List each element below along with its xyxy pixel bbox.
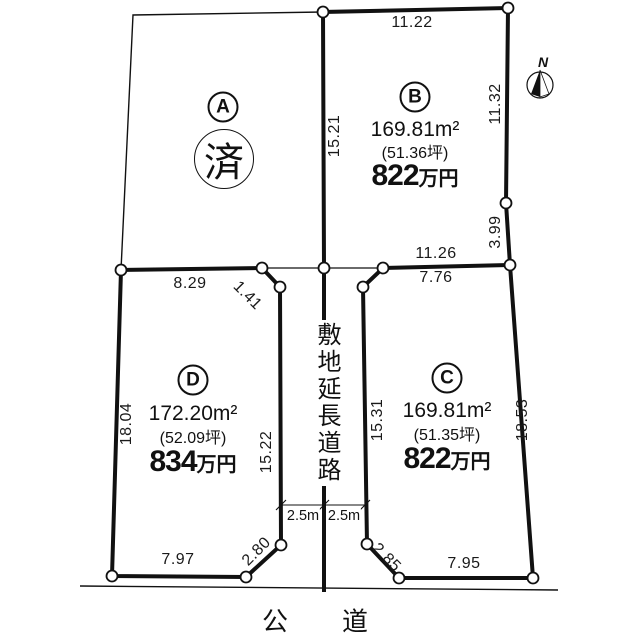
plot-c-price-unit: 万円 [451, 451, 491, 473]
plot-a-badge: A [208, 92, 239, 123]
north-compass-icon [527, 70, 553, 98]
dim-b-right-lower: 3.99 [487, 215, 505, 248]
plot-d-price-unit: 万円 [197, 454, 237, 476]
road-width-right-label: 2.5m [327, 508, 361, 524]
plot-c-area: 169.81m² [403, 399, 492, 423]
plot-b-price-value: 822 [371, 159, 418, 192]
plot-c-price-value: 822 [403, 442, 450, 475]
dim-b-right-upper: 11.32 [487, 83, 505, 124]
dim-c-right: 18.53 [514, 399, 532, 442]
plot-d-area: 172.20m² [149, 402, 238, 426]
dim-b-top: 11.22 [391, 14, 432, 32]
dim-d-top: 8.29 [173, 275, 206, 293]
dim-c-bottom: 7.95 [447, 555, 480, 573]
center-road-label: 敷地延長道路 [314, 320, 338, 486]
dim-c-left: 15.31 [369, 399, 387, 442]
plot-b-badge: B [400, 82, 431, 113]
plot-a-sold-badge: 済 [194, 129, 254, 189]
plot-d-price: 834万円 [149, 445, 236, 479]
plot-c-price: 822万円 [403, 442, 490, 476]
dim-b-bottom: 11.26 [415, 245, 456, 263]
plot-b-price: 822万円 [371, 159, 458, 193]
dim-d-left: 18.04 [118, 403, 136, 446]
dim-d-right: 15.22 [258, 431, 276, 474]
plot-c-badge: C [432, 363, 463, 394]
public-road-line [80, 586, 558, 590]
plot-d-badge: D [178, 365, 209, 396]
dim-d-bottom: 7.97 [161, 551, 194, 569]
dim-c-top: 7.76 [419, 269, 452, 287]
plot-b-price-unit: 万円 [419, 168, 459, 190]
public-road-label: 公 道 [262, 602, 382, 639]
road-width-left-label: 2.5m [286, 508, 320, 524]
land-plot-diagram: N A 済 B 169.81m² (51.36坪) 822万円 C 169.81… [0, 0, 640, 640]
plot-d-price-value: 834 [149, 445, 196, 478]
dim-ab-boundary: 15.21 [326, 115, 344, 158]
north-label: N [538, 54, 548, 70]
